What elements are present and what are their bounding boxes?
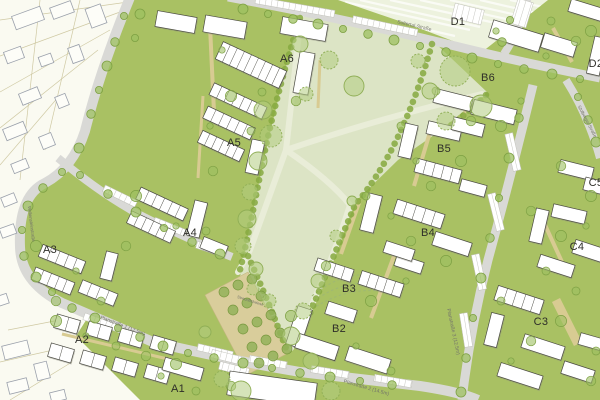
park-tree	[231, 381, 251, 400]
street-tree	[591, 137, 600, 147]
courtyard-tree	[130, 190, 141, 201]
courtyard-tree	[547, 17, 555, 25]
courtyard-tree	[571, 36, 581, 46]
courtyard-tree	[170, 358, 181, 369]
courtyard-tree	[455, 155, 466, 166]
courtyard-tree	[362, 192, 370, 200]
courtyard-tree	[225, 90, 236, 101]
courtyard-tree	[440, 255, 451, 266]
courtyard-tree	[353, 343, 359, 349]
orchard-tree	[261, 335, 271, 345]
block-label-a5: A5	[227, 137, 241, 149]
courtyard-tree	[141, 351, 151, 361]
courtyard-tree	[397, 122, 405, 130]
park-tree	[282, 327, 300, 345]
street-tree	[313, 19, 323, 29]
street-tree	[58, 168, 65, 175]
street-tree	[339, 25, 346, 32]
courtyard-tree	[426, 181, 436, 191]
park-tree	[411, 54, 425, 68]
street-tree	[76, 171, 83, 178]
courtyard-tree	[555, 230, 566, 241]
courtyard-tree	[388, 213, 394, 219]
street-tree	[469, 314, 476, 321]
courtyard-tree	[413, 158, 419, 164]
park-tree	[199, 326, 211, 338]
courtyard-tree	[207, 123, 213, 129]
courtyard-tree	[173, 223, 179, 229]
park-tree	[214, 371, 230, 387]
courtyard-tree	[51, 296, 61, 306]
street-tree	[102, 61, 112, 71]
park-tree	[242, 184, 258, 200]
park-tree	[249, 152, 267, 170]
street-tree	[131, 34, 138, 41]
street-tree	[31, 272, 41, 282]
map-canvas: Planstraße 1 (12.5m)Planstraße 2 (14.5m)…	[0, 0, 600, 400]
courtyard-tree	[406, 236, 416, 246]
street-tree	[120, 12, 127, 19]
orchard-tree	[266, 310, 276, 320]
street-tree	[18, 226, 25, 233]
block-label-d2: D2	[589, 58, 600, 70]
courtyard-tree	[247, 127, 255, 135]
courtyard-tree	[219, 47, 225, 53]
park-tree	[347, 196, 357, 206]
park-tree	[440, 56, 470, 86]
courtyard-tree	[387, 367, 395, 375]
block-label-a6: A6	[280, 53, 294, 65]
park-tree	[254, 101, 272, 119]
courtyard-tree	[192, 387, 200, 395]
courtyard-tree	[403, 278, 409, 284]
street-tree	[547, 69, 557, 79]
street-tree	[20, 252, 29, 261]
street-tree	[388, 381, 397, 390]
street-tree	[364, 30, 373, 39]
park-tree	[303, 353, 319, 369]
orchard-tree	[219, 287, 229, 297]
courtyard-tree	[97, 297, 105, 305]
street-tree	[494, 60, 501, 67]
street-tree	[87, 110, 96, 119]
block-label-b3: B3	[342, 283, 356, 295]
street-tree	[210, 354, 219, 363]
courtyard-tree	[208, 166, 218, 176]
block-label-c5: C5	[589, 177, 600, 189]
courtyard-tree	[495, 120, 506, 131]
courtyard-tree	[555, 315, 566, 326]
courtyard-tree	[50, 315, 61, 326]
site-plan-map[interactable]: Planstraße 1 (12.5m)Planstraße 2 (14.5m)…	[0, 0, 600, 400]
orchard-tree	[238, 324, 248, 334]
street-tree	[160, 224, 167, 231]
courtyard-tree	[493, 28, 499, 34]
courtyard-tree	[285, 310, 296, 321]
park-tree	[247, 283, 259, 295]
street-tree	[520, 65, 529, 74]
block-label-a2: A2	[75, 334, 89, 346]
street-tree	[215, 249, 225, 259]
orchard-tree	[228, 305, 238, 315]
orchard-tree	[247, 342, 257, 352]
street-tree	[498, 38, 507, 47]
park-tree	[299, 87, 313, 101]
block-label-b4: B4	[421, 227, 435, 239]
orchard-tree	[254, 358, 264, 368]
orchard-tree	[252, 317, 262, 327]
street-tree	[264, 10, 271, 17]
block-label-c3: C3	[534, 316, 549, 328]
orchard-tree	[282, 344, 292, 354]
courtyard-tree	[158, 373, 164, 379]
street-tree	[574, 93, 581, 100]
orchard-tree	[268, 351, 278, 361]
street-tree	[68, 304, 77, 313]
courtyard-tree	[542, 267, 550, 275]
park-tree	[249, 262, 263, 276]
street-tree	[476, 273, 486, 283]
courtyard-tree	[30, 240, 41, 251]
courtyard-tree	[586, 376, 596, 386]
park-tree	[470, 95, 492, 117]
park-tree	[311, 274, 325, 288]
street-tree	[515, 114, 524, 123]
street-tree	[95, 86, 102, 93]
street-tree	[325, 372, 335, 382]
courtyard-tree	[526, 336, 536, 346]
block-label-b2: B2	[332, 323, 346, 335]
street-tree	[135, 9, 145, 19]
courtyard-tree	[543, 53, 549, 59]
street-tree	[504, 153, 514, 163]
park-tree	[320, 51, 338, 69]
park-tree	[235, 238, 251, 254]
street-tree	[104, 190, 113, 199]
courtyard-tree	[112, 342, 120, 350]
street-tree	[576, 75, 583, 82]
street-tree	[39, 184, 48, 193]
street-tree	[296, 369, 305, 378]
park-tree	[344, 76, 364, 96]
street-tree	[238, 4, 248, 14]
block-label-a1: A1	[171, 383, 185, 395]
street-tree	[456, 387, 466, 397]
street-tree	[467, 53, 477, 63]
courtyard-tree	[291, 96, 301, 106]
street-tree	[442, 48, 451, 57]
courtyard-tree	[202, 227, 210, 235]
courtyard-tree	[466, 116, 476, 126]
courtyard-tree	[556, 161, 566, 171]
courtyard-tree	[365, 295, 376, 306]
block-label-b6: B6	[481, 72, 495, 84]
block-label-a3: A3	[43, 244, 57, 256]
park-tree	[238, 210, 256, 228]
park-tree	[260, 125, 282, 147]
street-tree	[289, 15, 298, 24]
courtyard-tree	[497, 297, 505, 305]
courtyard-tree	[121, 241, 131, 251]
street-tree	[462, 354, 471, 363]
street-tree	[74, 143, 84, 153]
courtyard-tree	[518, 98, 524, 104]
courtyard-tree	[585, 25, 596, 36]
courtyard-tree	[321, 261, 331, 271]
street-tree	[131, 207, 141, 217]
courtyard-tree	[585, 190, 596, 201]
block-label-d1: D1	[451, 16, 466, 28]
park-tree	[322, 382, 340, 400]
street-tree	[90, 313, 100, 323]
park-tree	[292, 36, 308, 52]
courtyard-tree	[258, 88, 266, 96]
park-tree	[422, 83, 438, 99]
park-tree	[262, 294, 276, 308]
park-tree	[295, 303, 311, 319]
street-tree	[495, 194, 502, 201]
courtyard-tree	[572, 287, 580, 295]
courtyard-tree	[583, 223, 589, 229]
street-tree	[111, 38, 120, 47]
street-tree	[416, 42, 423, 49]
courtyard-tree	[592, 347, 600, 355]
courtyard-tree	[73, 268, 79, 274]
street-tree	[184, 349, 191, 356]
street-tree	[486, 234, 495, 243]
courtyard-tree	[508, 358, 514, 364]
block-label-c4: C4	[570, 241, 585, 253]
block-label-b5: B5	[437, 143, 451, 155]
block-label-a4: A4	[183, 227, 197, 239]
park-tree	[437, 112, 455, 130]
street-tree	[506, 16, 513, 23]
orchard-tree	[233, 280, 243, 290]
park-tree	[330, 230, 342, 242]
street-tree	[389, 35, 399, 45]
street-tree	[238, 358, 248, 368]
courtyard-tree	[526, 206, 536, 216]
street-tree	[158, 341, 168, 351]
street-tree	[48, 288, 55, 295]
street-tree	[268, 364, 275, 371]
